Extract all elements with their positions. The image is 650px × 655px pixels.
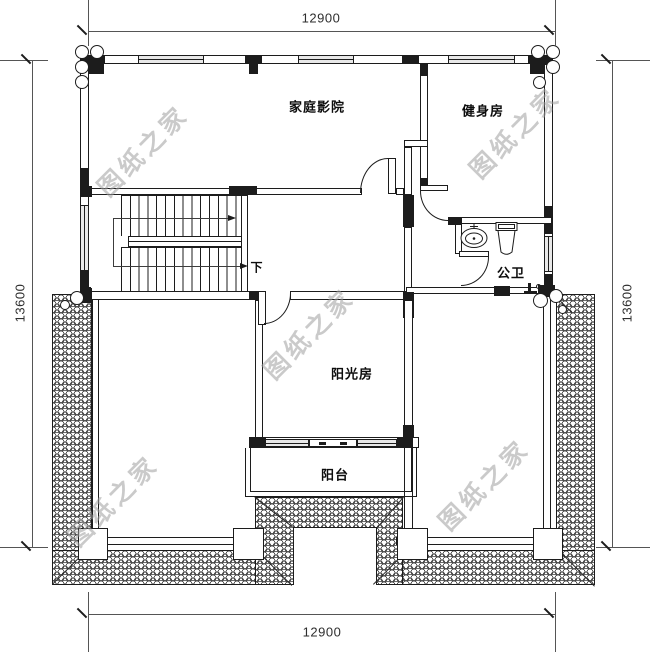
room-label-home-theater: 家庭影院	[289, 97, 345, 116]
dim-tick	[77, 25, 88, 36]
column	[249, 291, 258, 300]
stair-right-wall	[241, 195, 248, 292]
dim-tick	[21, 541, 32, 552]
window-top-3	[448, 55, 515, 64]
window-left-wall	[80, 205, 89, 271]
dim-extension-line	[0, 60, 48, 61]
terrace-wall-right	[543, 296, 551, 542]
roof-center-notch	[293, 527, 377, 585]
corner-circle	[531, 45, 545, 59]
corner-circle	[533, 293, 548, 308]
room-label-gym: 健身房	[462, 101, 504, 120]
stair-handrail	[128, 236, 244, 247]
dim-line-left	[32, 60, 33, 547]
roof-post	[533, 528, 563, 560]
corner-circle	[70, 291, 84, 305]
column	[397, 437, 413, 448]
dim-extension-line	[555, 0, 556, 46]
dim-extension-line	[596, 547, 650, 548]
column	[249, 64, 258, 74]
column	[245, 55, 262, 64]
room-label-sunroom: 阳光房	[331, 364, 373, 383]
bathroom-fixtures	[460, 222, 522, 260]
column	[249, 437, 266, 448]
wall-theater-gym-divider	[420, 64, 428, 190]
column	[229, 186, 257, 195]
corner-circle	[90, 45, 104, 59]
corner-circle	[75, 75, 89, 89]
dim-label-right: 13600	[620, 284, 635, 323]
room-label-bathroom: 公卫	[497, 263, 525, 282]
dim-label-bottom: 12900	[303, 625, 342, 640]
dim-tick	[544, 608, 555, 619]
window-mullion	[319, 442, 326, 445]
corner-circle	[75, 45, 89, 59]
door-arc-bathroom	[461, 257, 489, 286]
corner-column	[89, 59, 104, 74]
dim-tick	[21, 54, 32, 65]
dim-extension-line	[555, 592, 556, 652]
dim-tick	[77, 608, 88, 619]
dim-label-top: 12900	[302, 11, 341, 26]
dim-line-top	[88, 31, 556, 32]
column	[494, 286, 510, 296]
corner-circle	[546, 45, 560, 59]
dim-tick	[601, 541, 612, 552]
room-label-balcony: 阳台	[321, 465, 349, 484]
dim-label-left: 13600	[13, 284, 28, 323]
floor-plan-canvas: 下	[0, 0, 650, 655]
dim-line-right	[612, 60, 613, 547]
door-arc-gym	[420, 191, 448, 221]
window-sunroom-1	[265, 439, 309, 447]
window-sunroom-center	[309, 439, 357, 447]
door-leaf-theater	[388, 158, 396, 194]
dim-tick	[544, 25, 555, 36]
column	[420, 64, 428, 76]
wall-hall-bottom	[80, 291, 258, 300]
window-top-1	[138, 55, 204, 64]
corner-circle	[60, 300, 70, 310]
stair-direction-line	[113, 266, 243, 267]
wall-theater-bottom	[88, 188, 362, 195]
window-sunroom-2	[357, 439, 397, 447]
stair-treads-lower	[121, 247, 245, 292]
window-mullion	[340, 442, 347, 445]
stair-direction-arrow	[228, 215, 236, 221]
watermark: 图纸之家	[429, 430, 536, 537]
wall-corridor-spine	[404, 147, 412, 195]
corner-circle	[75, 60, 89, 74]
stair-direction-line	[113, 218, 114, 267]
wall-segment	[396, 188, 404, 195]
corner-column	[530, 60, 545, 74]
roof-post	[233, 528, 264, 560]
dim-line-bottom	[88, 614, 556, 615]
sink-icon	[461, 224, 487, 248]
dim-extension-line	[0, 547, 48, 548]
corner-circle	[546, 60, 560, 74]
column	[403, 195, 414, 227]
dim-tick	[601, 54, 612, 65]
stair-down-label: 下	[250, 259, 263, 276]
dim-extension-line	[88, 592, 89, 652]
door-arc-theater	[360, 158, 388, 193]
wall-sunroom-right	[404, 300, 413, 542]
roof-post	[397, 528, 428, 560]
column	[80, 186, 92, 197]
dim-extension-line	[88, 0, 89, 46]
window-top-2	[298, 55, 354, 64]
drain-symbol	[528, 283, 531, 292]
column	[402, 55, 419, 64]
window-right-wall	[544, 236, 553, 272]
wall-corridor-spine	[404, 140, 428, 147]
stair-direction-arrow	[240, 263, 248, 269]
wall-corridor-spine	[404, 227, 412, 292]
corner-circle	[558, 305, 567, 314]
stair-treads-upper	[121, 195, 245, 236]
stair-direction-line	[113, 218, 231, 219]
dim-extension-line	[596, 60, 650, 61]
door-arc-sunroom	[264, 293, 291, 324]
corner-circle	[549, 289, 563, 303]
toilet-icon	[496, 223, 517, 255]
